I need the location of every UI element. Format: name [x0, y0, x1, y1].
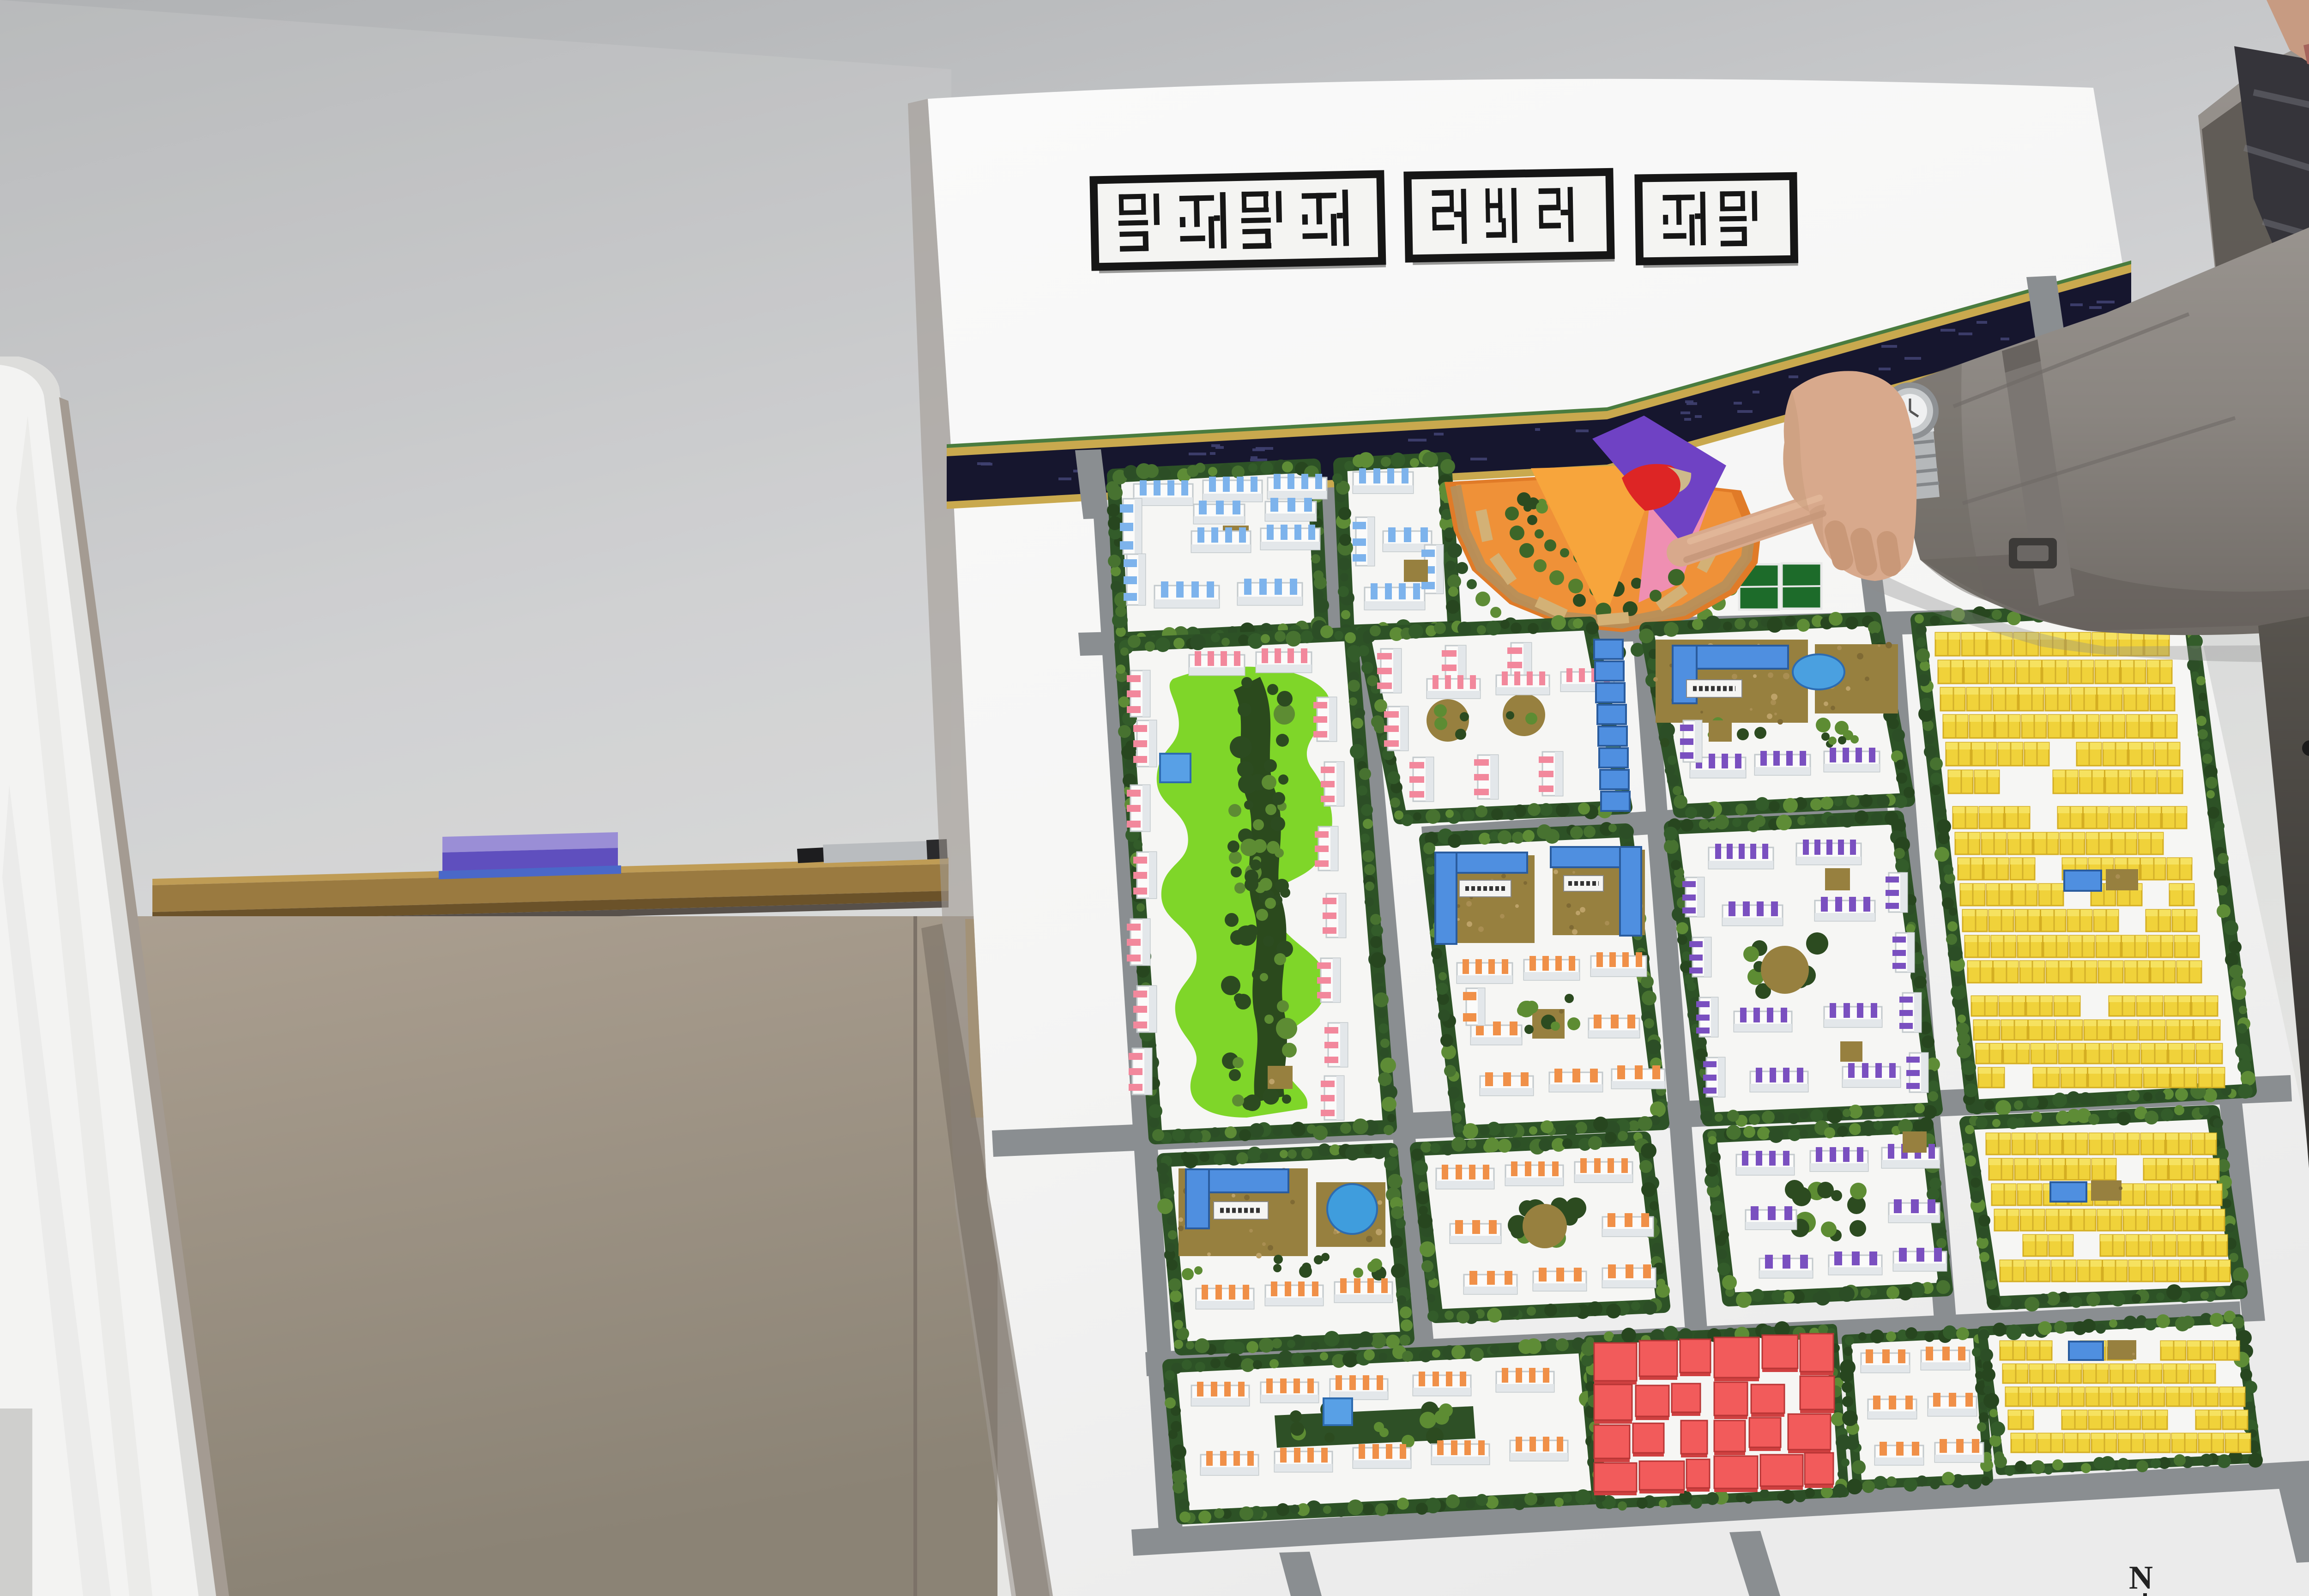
svg-text:N: N — [2129, 1559, 2153, 1596]
